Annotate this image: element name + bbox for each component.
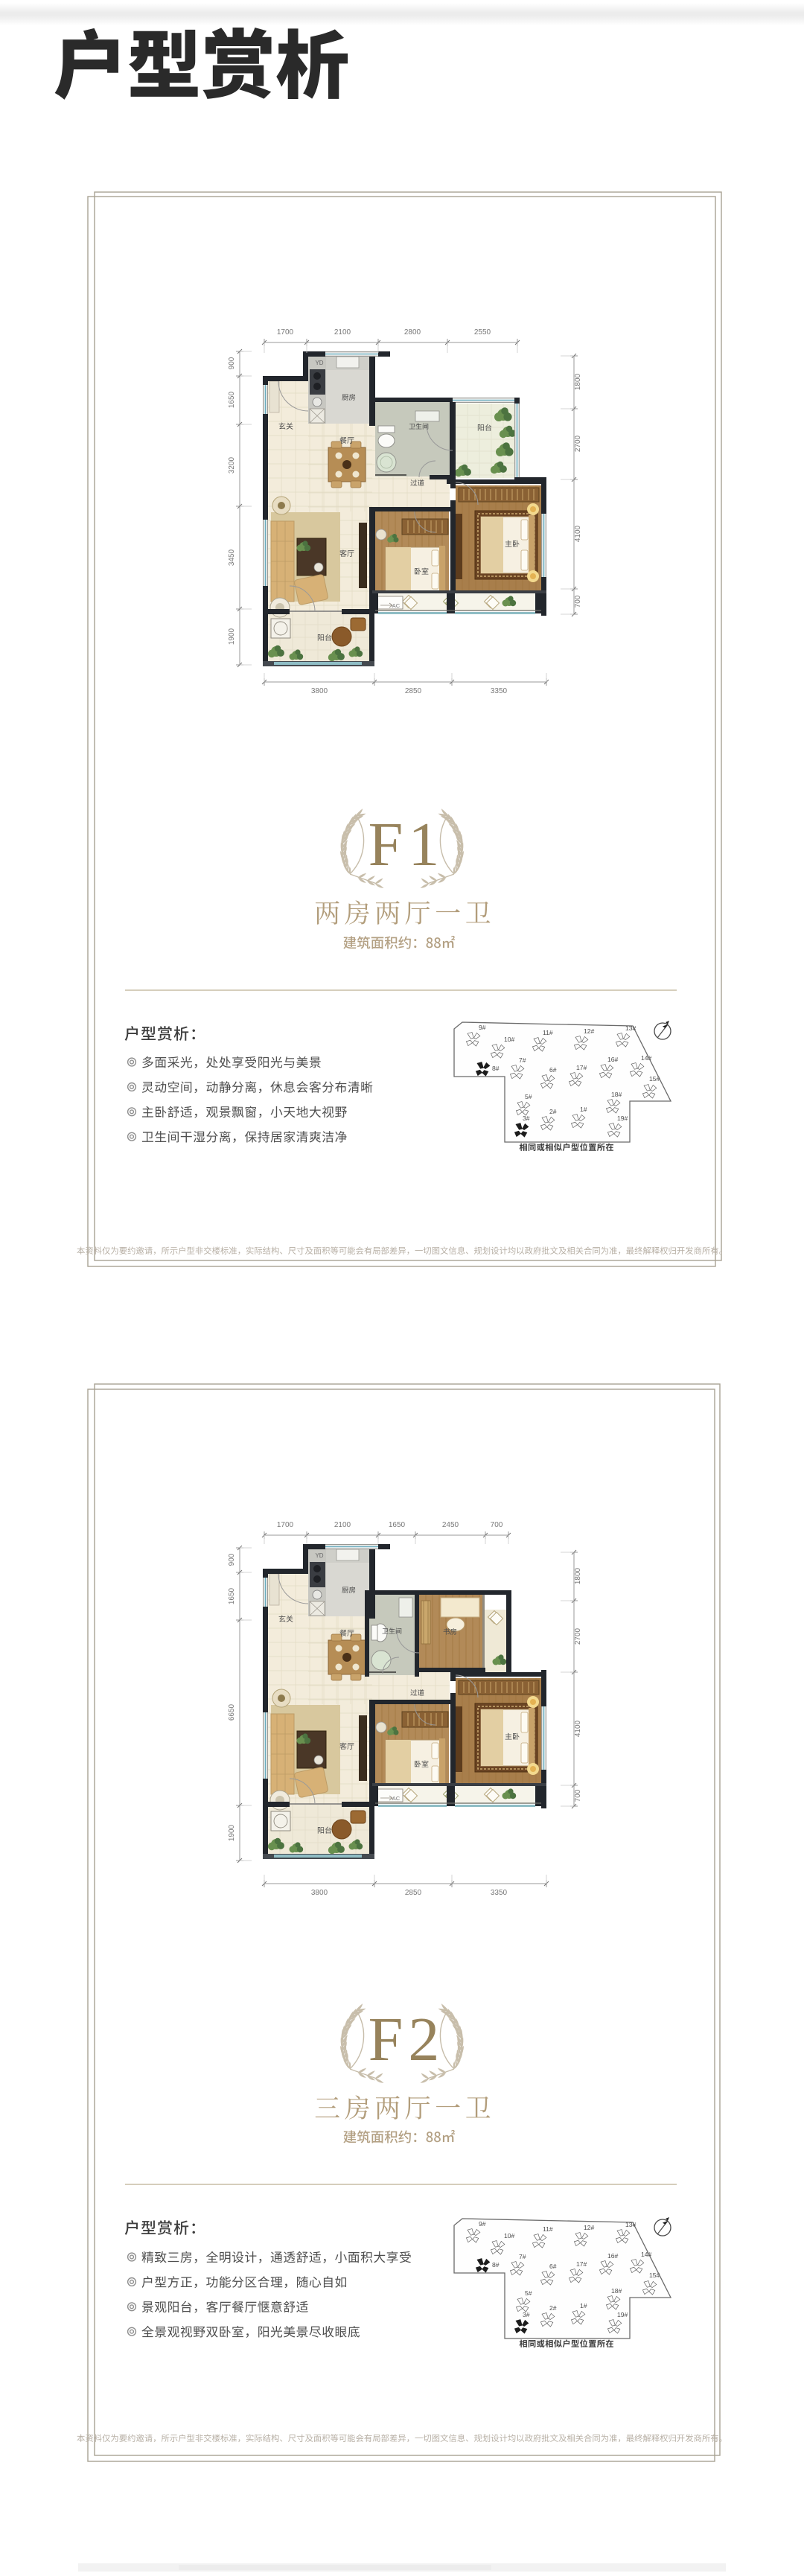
svg-text:1650: 1650 [228, 391, 236, 408]
svg-text:1900: 1900 [228, 1824, 236, 1841]
svg-text:1800: 1800 [574, 373, 582, 390]
svg-text:3350: 3350 [491, 687, 508, 695]
svg-text:2850: 2850 [405, 1889, 422, 1897]
svg-text:1700: 1700 [277, 328, 294, 337]
svg-text:1650: 1650 [228, 1587, 236, 1604]
svg-text:4100: 4100 [574, 525, 582, 542]
svg-text:2700: 2700 [574, 1627, 582, 1645]
svg-text:2700: 2700 [574, 435, 582, 452]
svg-text:900: 900 [228, 357, 236, 369]
svg-text:YD: YD [315, 360, 323, 366]
svg-text:700: 700 [491, 1521, 503, 1529]
svg-text:700: 700 [574, 1789, 582, 1802]
svg-text:1900: 1900 [228, 628, 236, 645]
svg-text:2850: 2850 [405, 687, 422, 695]
svg-text:2100: 2100 [334, 1521, 351, 1529]
svg-text:4100: 4100 [574, 1720, 582, 1737]
svg-text:1650: 1650 [389, 1521, 406, 1529]
svg-text:1700: 1700 [277, 1521, 294, 1529]
svg-text:AC: AC [392, 602, 401, 609]
svg-text:3350: 3350 [491, 1889, 508, 1897]
svg-text:F2: F2 [368, 2005, 445, 2074]
svg-text:3450: 3450 [228, 549, 236, 566]
svg-text:3800: 3800 [311, 1889, 328, 1897]
svg-text:F1: F1 [368, 810, 445, 879]
svg-text:3800: 3800 [311, 687, 328, 695]
svg-text:700: 700 [574, 595, 582, 608]
svg-text:2800: 2800 [404, 328, 421, 337]
svg-text:2450: 2450 [442, 1521, 459, 1529]
svg-text:6650: 6650 [228, 1703, 236, 1721]
svg-text:YD: YD [315, 1552, 323, 1559]
svg-text:900: 900 [228, 1553, 236, 1566]
svg-text:3200: 3200 [228, 456, 236, 474]
svg-text:1800: 1800 [574, 1567, 582, 1584]
svg-text:AC: AC [392, 1795, 401, 1802]
svg-text:2100: 2100 [334, 328, 351, 337]
svg-text:2550: 2550 [474, 328, 491, 337]
